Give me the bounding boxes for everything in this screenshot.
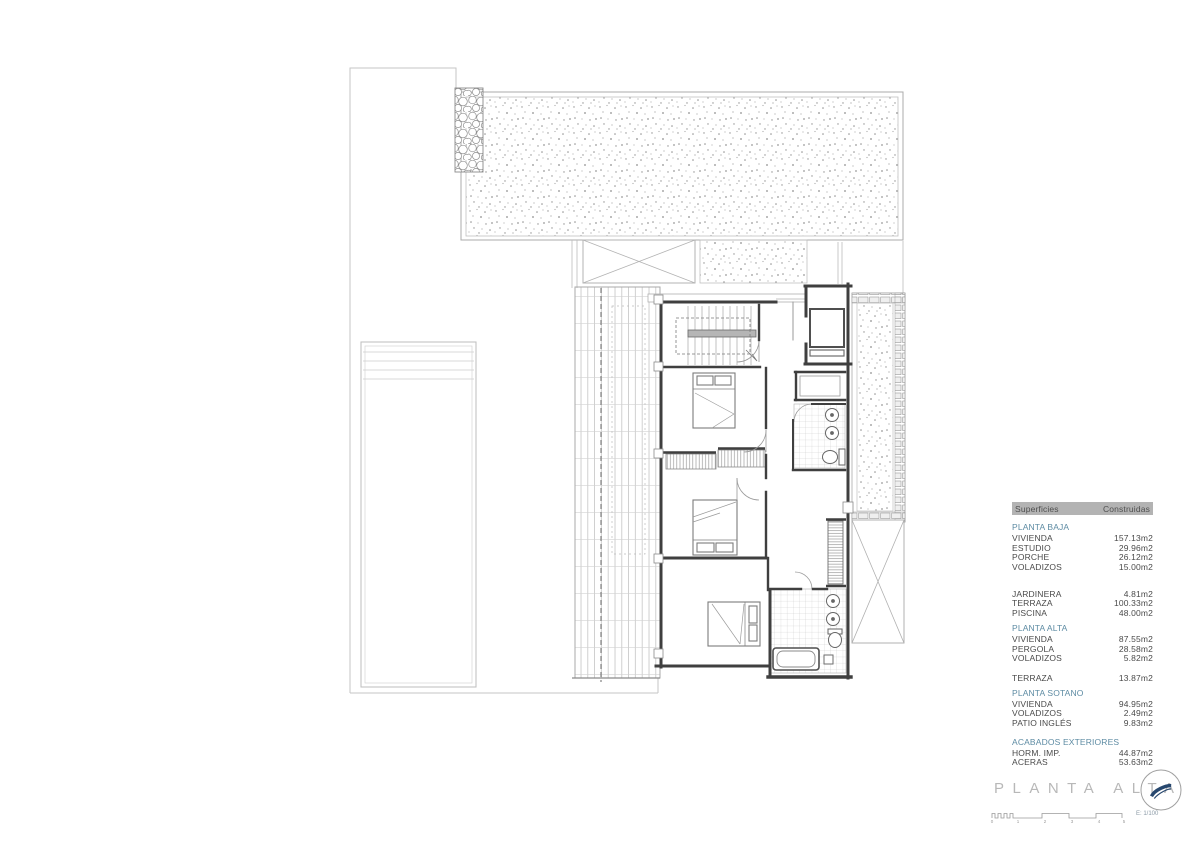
table-section-label: PLANTA ALTA bbox=[1012, 623, 1153, 633]
row-value: 53.63m2 bbox=[1119, 758, 1153, 768]
scale-ratio-label: E: 1/100 bbox=[1136, 811, 1158, 817]
scale-tick-labels: 012345 bbox=[990, 819, 1130, 827]
shower-room-fixture bbox=[810, 309, 844, 356]
table-row: ACERAS53.63m2 bbox=[1012, 758, 1153, 768]
table-row: TERRAZA13.87m2 bbox=[1012, 674, 1153, 684]
studio-logo bbox=[1138, 768, 1184, 812]
east-canopy bbox=[852, 520, 904, 643]
table-row: VOLADIZOS15.00m2 bbox=[1012, 563, 1153, 573]
scale-tick: 2 bbox=[1041, 819, 1049, 824]
table-row: VOLADIZOS5.82m2 bbox=[1012, 654, 1153, 664]
closet bbox=[800, 376, 840, 396]
table-gap bbox=[1012, 729, 1153, 733]
table-row: PISCINA48.00m2 bbox=[1012, 609, 1153, 619]
side-deck bbox=[572, 287, 660, 682]
scale-tick: 4 bbox=[1095, 819, 1103, 824]
linen-closet bbox=[826, 520, 846, 587]
pergola-deck-patch bbox=[700, 240, 807, 283]
pool-outline bbox=[361, 342, 476, 687]
staircase bbox=[676, 306, 757, 365]
table-section-label: PLANTA SOTANO bbox=[1012, 688, 1153, 698]
surfaces-table: Superficies Construidas PLANTA BAJAVIVIE… bbox=[1012, 502, 1153, 768]
row-value: 5.82m2 bbox=[1124, 654, 1153, 664]
header-col-construidas: Construidas bbox=[1103, 504, 1150, 514]
table-gap bbox=[1012, 573, 1153, 590]
scale-tick: 3 bbox=[1068, 819, 1076, 824]
row-label: PISCINA bbox=[1012, 609, 1047, 619]
surfaces-table-header: Superficies Construidas bbox=[1012, 502, 1153, 515]
pebble-strip bbox=[455, 88, 483, 172]
row-value: 9.83m2 bbox=[1124, 719, 1153, 729]
table-section-label: PLANTA BAJA bbox=[1012, 522, 1153, 532]
scale-tick: 1 bbox=[1014, 819, 1022, 824]
header-col-superficies: Superficies bbox=[1015, 504, 1059, 514]
upper-terrace bbox=[461, 92, 903, 240]
east-terrace bbox=[852, 293, 905, 522]
surfaces-table-rows: PLANTA BAJAVIVIENDA157.13m2ESTUDIO29.96m… bbox=[1012, 522, 1153, 768]
row-value: 48.00m2 bbox=[1119, 609, 1153, 619]
row-label: VOLADIZOS bbox=[1012, 563, 1062, 573]
scale-tick: 0 bbox=[988, 819, 996, 824]
logo-signature bbox=[1150, 785, 1173, 799]
row-label: VOLADIZOS bbox=[1012, 654, 1062, 664]
table-section-label: ACABADOS EXTERIORES bbox=[1012, 737, 1153, 747]
drawing-sheet: Superficies Construidas PLANTA BAJAVIVIE… bbox=[0, 0, 1200, 848]
row-value: 13.87m2 bbox=[1119, 674, 1153, 684]
table-row: PATIO INGLÉS9.83m2 bbox=[1012, 719, 1153, 729]
row-label: PATIO INGLÉS bbox=[1012, 719, 1072, 729]
bed-master bbox=[693, 373, 735, 428]
bed-2 bbox=[693, 500, 737, 555]
row-label: ACERAS bbox=[1012, 758, 1048, 768]
pool-steps bbox=[363, 352, 474, 379]
graphic-scale bbox=[990, 806, 1132, 820]
scale-tick: 5 bbox=[1120, 819, 1128, 824]
bed-3 bbox=[708, 602, 760, 646]
pergola-beam bbox=[583, 240, 695, 283]
row-value: 15.00m2 bbox=[1119, 563, 1153, 573]
row-label: TERRAZA bbox=[1012, 674, 1053, 684]
